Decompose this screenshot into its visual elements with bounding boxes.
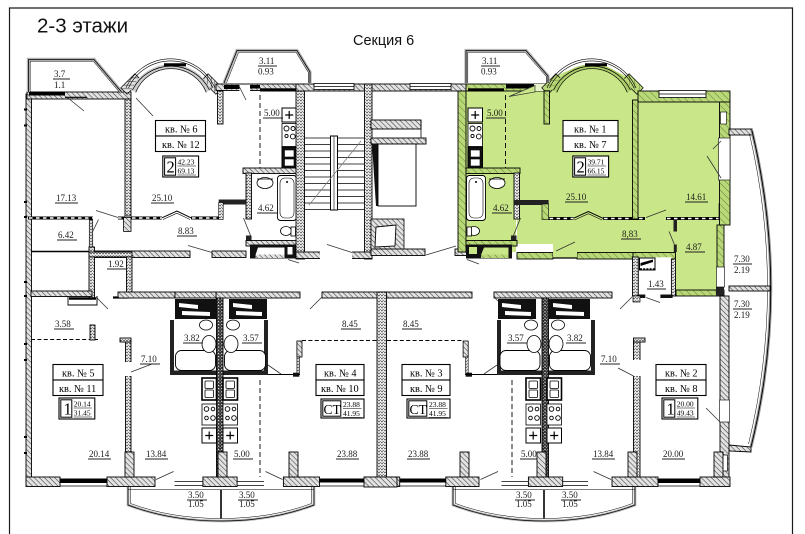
svg-text:4.87: 4.87 [686, 242, 702, 252]
svg-text:2-3 этажи: 2-3 этажи [37, 15, 128, 38]
svg-text:7.30: 7.30 [734, 299, 750, 309]
svg-text:20.00: 20.00 [663, 449, 684, 459]
svg-text:кв. № 5: кв. № 5 [62, 369, 95, 380]
svg-text:2: 2 [577, 158, 585, 177]
svg-text:Секция 6: Секция 6 [353, 33, 414, 49]
svg-text:49.43: 49.43 [677, 409, 694, 418]
svg-text:25.10: 25.10 [152, 193, 173, 203]
svg-text:1.1: 1.1 [54, 80, 65, 90]
svg-text:3.82: 3.82 [567, 333, 583, 343]
svg-text:23.88: 23.88 [408, 449, 429, 459]
svg-text:3.11: 3.11 [482, 56, 497, 66]
svg-text:13.84: 13.84 [593, 449, 614, 459]
svg-text:3.57: 3.57 [508, 333, 524, 343]
svg-text:кв. № 9: кв. № 9 [410, 384, 443, 395]
svg-text:42.23: 42.23 [178, 158, 195, 167]
svg-text:1.43: 1.43 [648, 279, 664, 289]
svg-text:2.19: 2.19 [734, 265, 750, 275]
svg-text:кв. № 1: кв. № 1 [574, 125, 607, 136]
svg-text:14.61: 14.61 [686, 192, 706, 202]
svg-text:кв. № 8: кв. № 8 [665, 384, 698, 395]
svg-text:7.10: 7.10 [141, 354, 157, 364]
svg-text:41.95: 41.95 [429, 409, 446, 418]
svg-text:13.84: 13.84 [146, 449, 167, 459]
svg-text:1.05: 1.05 [239, 499, 255, 509]
svg-text:3.82: 3.82 [184, 333, 200, 343]
svg-text:23.88: 23.88 [429, 400, 446, 409]
svg-text:20.14: 20.14 [74, 400, 91, 409]
svg-text:5.00: 5.00 [521, 449, 537, 459]
svg-text:3.57: 3.57 [243, 333, 259, 343]
svg-text:2.19: 2.19 [734, 310, 750, 320]
svg-text:кв. № 2: кв. № 2 [665, 369, 698, 380]
svg-text:23.88: 23.88 [343, 400, 360, 409]
svg-text:1: 1 [64, 400, 72, 419]
svg-text:7.10: 7.10 [601, 354, 617, 364]
svg-text:66.15: 66.15 [588, 167, 605, 176]
svg-text:69.13: 69.13 [178, 167, 195, 176]
svg-text:5.00: 5.00 [234, 449, 250, 459]
svg-text:1.05: 1.05 [562, 499, 578, 509]
svg-text:8.45: 8.45 [403, 319, 419, 329]
svg-text:2: 2 [167, 158, 175, 177]
svg-text:31.45: 31.45 [74, 409, 91, 418]
svg-text:1.92: 1.92 [108, 259, 124, 269]
svg-text:кв. № 3: кв. № 3 [410, 369, 443, 380]
svg-text:3.58: 3.58 [55, 319, 71, 329]
svg-text:4.62: 4.62 [493, 203, 509, 213]
svg-text:кв. № 11: кв. № 11 [59, 384, 96, 395]
svg-text:кв. № 4: кв. № 4 [324, 369, 357, 380]
svg-text:7.30: 7.30 [734, 254, 750, 264]
svg-text:20.14: 20.14 [89, 449, 110, 459]
svg-text:0.93: 0.93 [258, 67, 274, 77]
svg-text:кв. № 10: кв. № 10 [321, 384, 359, 395]
svg-text:25.10: 25.10 [566, 192, 587, 202]
svg-text:1: 1 [667, 400, 675, 419]
svg-text:5.00: 5.00 [264, 108, 280, 118]
svg-text:6.42: 6.42 [58, 230, 74, 240]
svg-text:20.00: 20.00 [677, 400, 694, 409]
svg-text:3.7: 3.7 [54, 69, 66, 79]
svg-text:кв. № 12: кв. № 12 [162, 140, 200, 151]
svg-text:СТ: СТ [410, 402, 428, 417]
svg-text:3.11: 3.11 [259, 56, 274, 66]
svg-text:4.62: 4.62 [258, 203, 274, 213]
svg-text:0.93: 0.93 [481, 67, 497, 77]
svg-text:17.13: 17.13 [56, 193, 77, 203]
svg-text:8.45: 8.45 [342, 319, 358, 329]
svg-text:39.71: 39.71 [588, 158, 605, 167]
svg-text:кв. № 6: кв. № 6 [165, 125, 198, 136]
svg-text:8.83: 8.83 [178, 226, 194, 236]
svg-text:СТ: СТ [324, 402, 342, 417]
svg-text:1.05: 1.05 [516, 499, 532, 509]
svg-text:23.88: 23.88 [337, 449, 358, 459]
svg-text:кв. № 7: кв. № 7 [574, 140, 607, 151]
svg-text:5.00: 5.00 [487, 108, 503, 118]
svg-text:41.95: 41.95 [343, 409, 360, 418]
svg-text:8,83: 8,83 [622, 229, 638, 239]
svg-text:1.05: 1.05 [188, 499, 204, 509]
